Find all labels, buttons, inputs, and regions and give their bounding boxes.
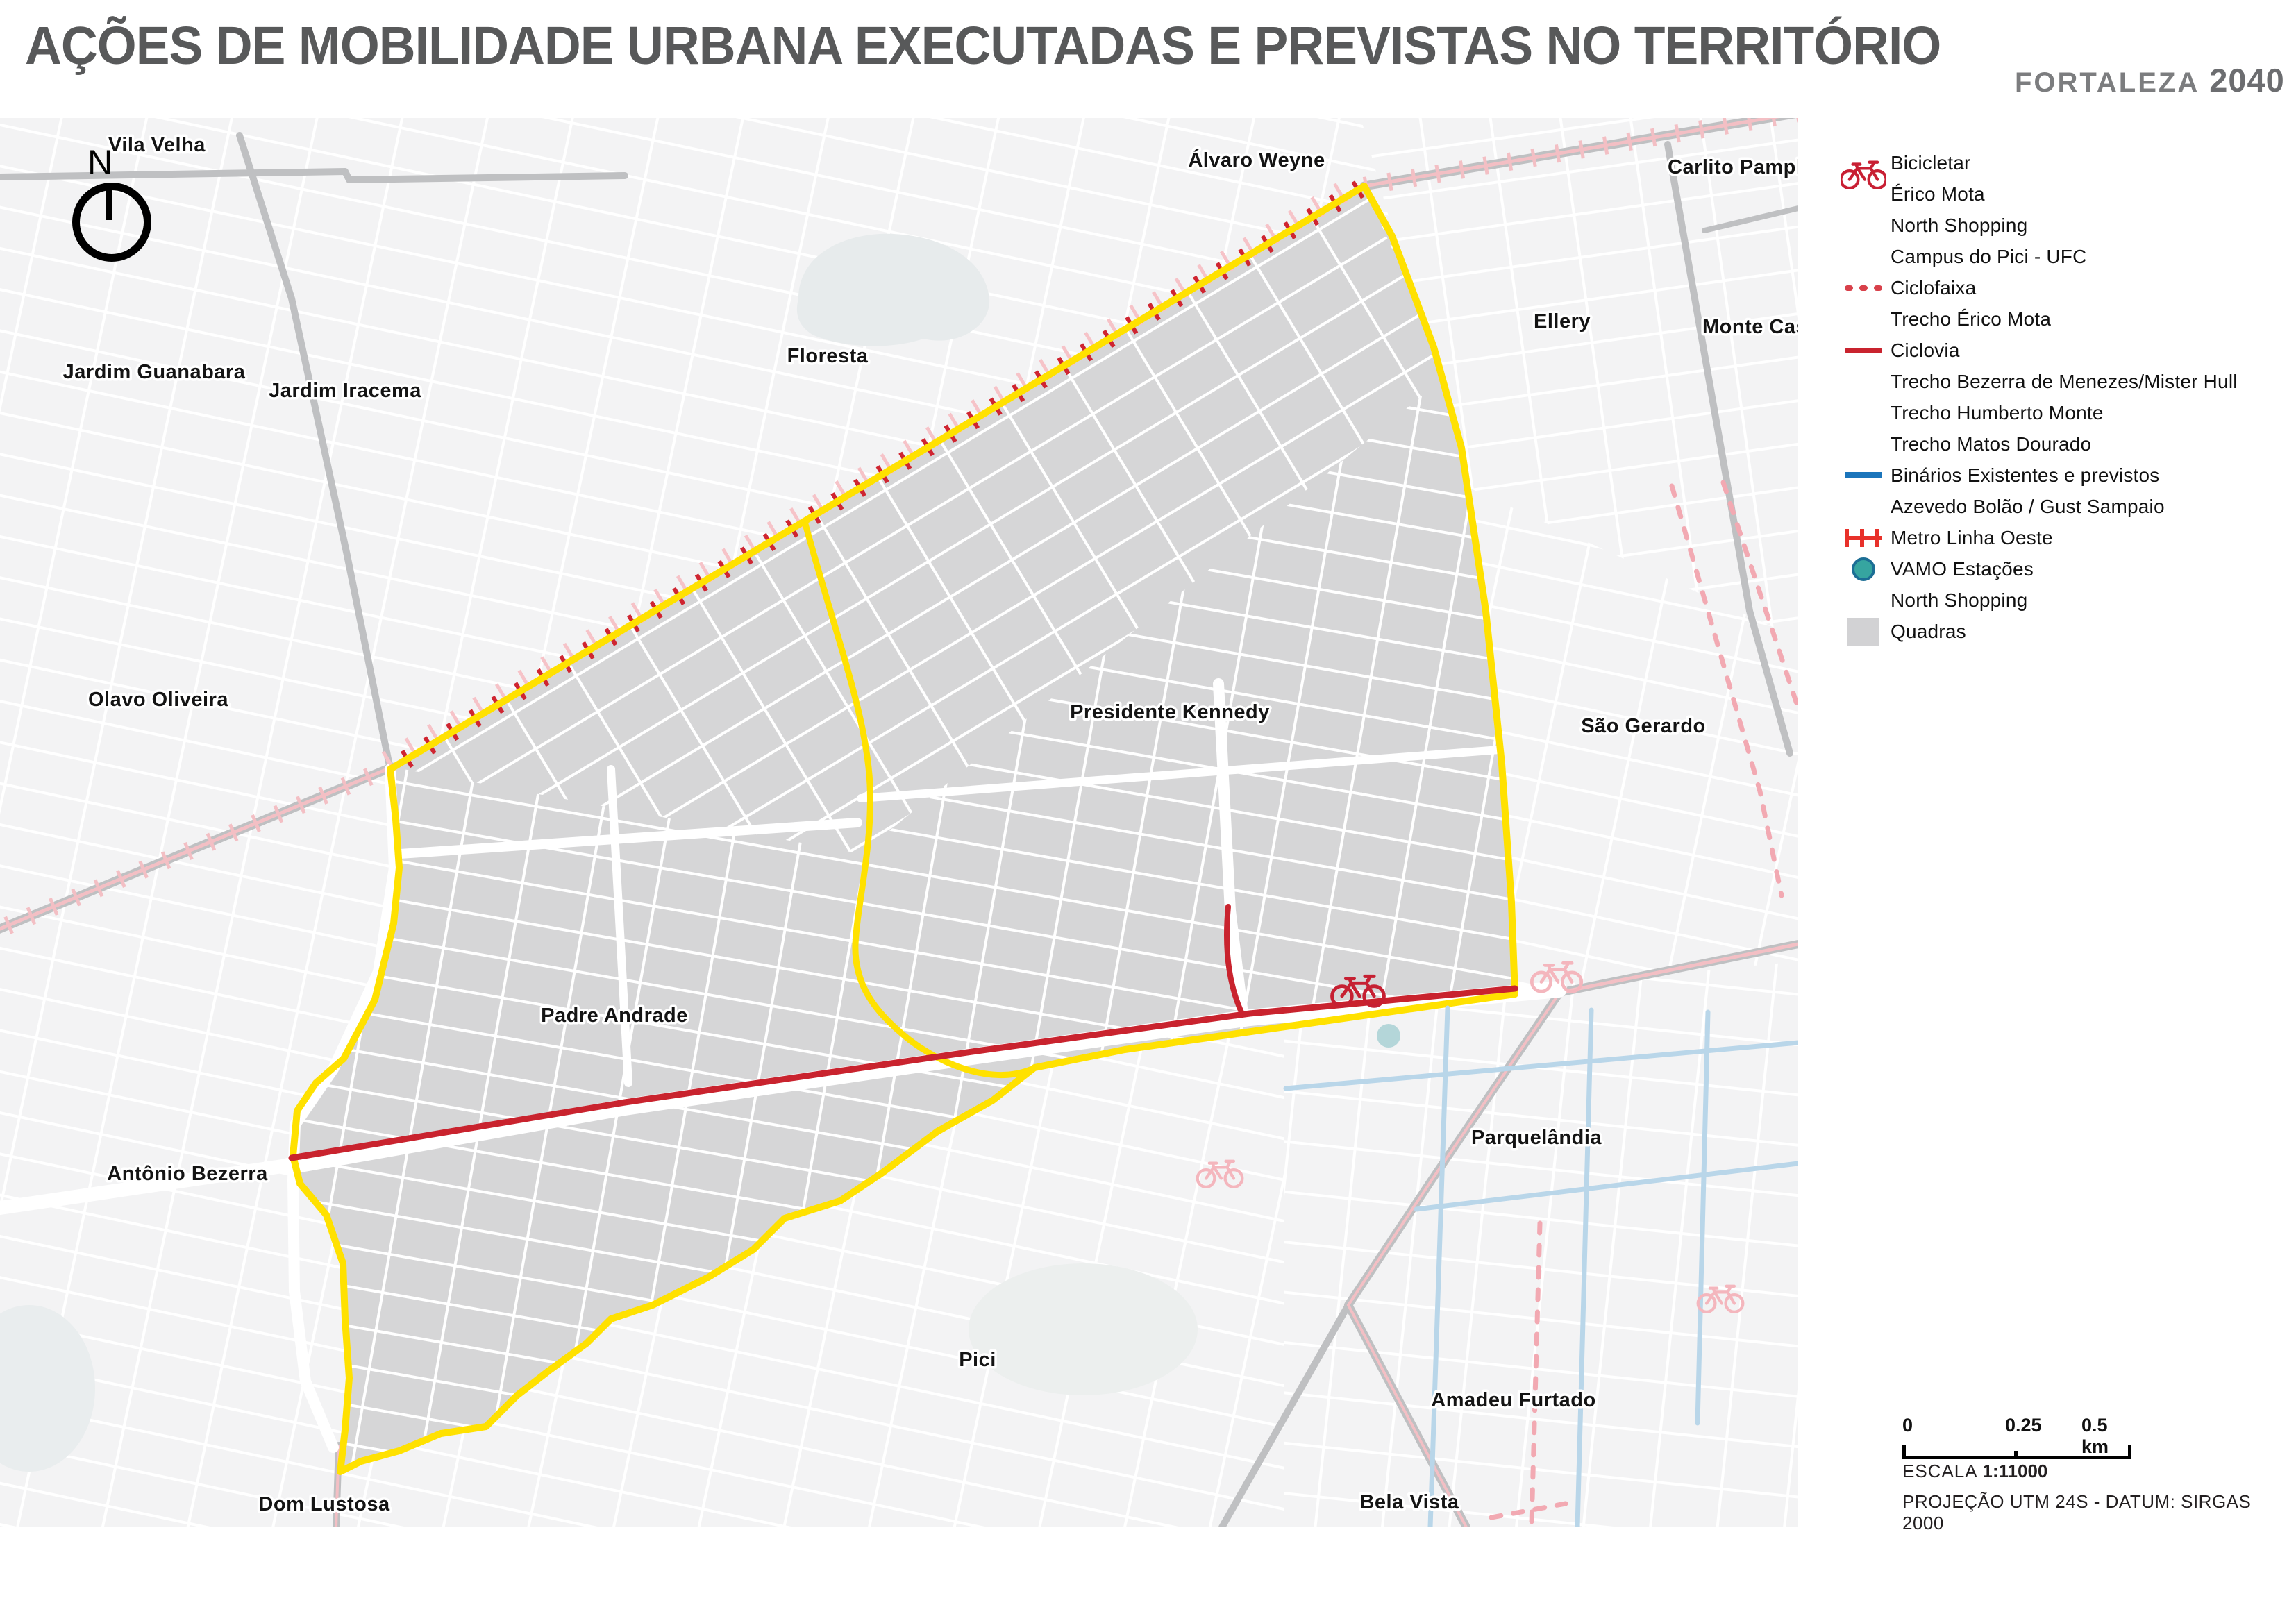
north-arrow: N xyxy=(69,142,153,260)
ciclofaixa-dashed-line-icon xyxy=(1836,285,1891,291)
ciclovia-solid-line-icon xyxy=(1836,348,1891,353)
neighborhood-label: Pici xyxy=(959,1349,996,1371)
neighborhood-label: Parquelândia xyxy=(1471,1127,1602,1149)
legend-item: Ciclovia xyxy=(1836,335,2281,366)
vamo-circle-icon xyxy=(1836,557,1891,581)
legend-item: Metro Linha Oeste xyxy=(1836,522,2281,553)
neighborhood-label: Álvaro Weyne xyxy=(1188,148,1325,171)
neighborhood-label: Bela Vista xyxy=(1359,1491,1459,1513)
legend-item: Trecho Matos Dourado xyxy=(1836,428,2281,460)
neighborhood-label: Antônio Bezerra xyxy=(107,1163,268,1185)
neighborhood-label: Jardim Iracema xyxy=(269,380,421,402)
pond-pici xyxy=(969,1263,1198,1395)
legend-item: Bicicletar xyxy=(1836,147,2281,178)
neighborhood-label: Dom Lustosa xyxy=(258,1493,390,1515)
neighborhood-label: Ellery xyxy=(1534,310,1591,333)
legend-item: Trecho Humberto Monte xyxy=(1836,397,2281,428)
neighborhood-label: Amadeu Furtado xyxy=(1431,1389,1595,1411)
quadras-square-icon xyxy=(1836,618,1891,646)
metro-line-icon xyxy=(1836,527,1891,549)
neighborhood-label: São Gerardo xyxy=(1581,715,1706,737)
north-label: N xyxy=(87,142,112,183)
legend: Bicicletar Érico Mota North Shopping Cam… xyxy=(1836,147,2281,647)
scale-tick-label: 0 xyxy=(1902,1415,1913,1436)
neighborhood-label: Carlito Pamplona xyxy=(1668,156,1839,178)
scale-value: 1:11000 xyxy=(1982,1461,2047,1481)
neighborhood-label: Floresta xyxy=(787,345,869,367)
bicicletar-icon xyxy=(1836,157,1891,189)
binarios-blue-line-icon xyxy=(1836,472,1891,478)
legend-item: Trecho Érico Mota xyxy=(1836,303,2281,335)
scale-text: ESCALA 1:11000 xyxy=(1902,1461,2047,1482)
legend-item: Campus do Pici - UFC xyxy=(1836,241,2281,272)
scale-tick-label: 0.25 xyxy=(2005,1415,2042,1436)
legend-item: Ciclofaixa xyxy=(1836,272,2281,303)
legend-item: VAMO Estações xyxy=(1836,553,2281,585)
north-needle xyxy=(106,184,112,220)
neighborhood-label: Monte Castelo xyxy=(1702,316,1845,338)
neighborhood-label: Padre Andrade xyxy=(541,1004,688,1027)
legend-item: North Shopping xyxy=(1836,210,2281,241)
legend-item: Azevedo Bolão / Gust Sampaio xyxy=(1836,491,2281,522)
scale-bar-line xyxy=(1902,1445,2138,1459)
vamo-station-marker xyxy=(1377,1024,1400,1048)
legend-item: North Shopping xyxy=(1836,585,2281,616)
projection-text: PROJEÇÃO UTM 24S - DATUM: SIRGAS 2000 xyxy=(1902,1491,2296,1534)
poster: AÇÕES DE MOBILIDADE URBANA EXECUTADAS E … xyxy=(0,0,2296,1623)
neighborhood-label: Olavo Oliveira xyxy=(88,689,228,711)
legend-item: Binários Existentes e previstos xyxy=(1836,460,2281,491)
legend-item: Quadras xyxy=(1836,616,2281,647)
legend-item: Érico Mota xyxy=(1836,178,2281,210)
scale-bar: 0 0.25 0.5 km xyxy=(1902,1415,2138,1459)
neighborhood-label: Jardim Guanabara xyxy=(63,361,246,383)
legend-item: Trecho Bezerra de Menezes/Mister Hull xyxy=(1836,366,2281,397)
neighborhood-label: Presidente Kennedy xyxy=(1070,701,1270,723)
